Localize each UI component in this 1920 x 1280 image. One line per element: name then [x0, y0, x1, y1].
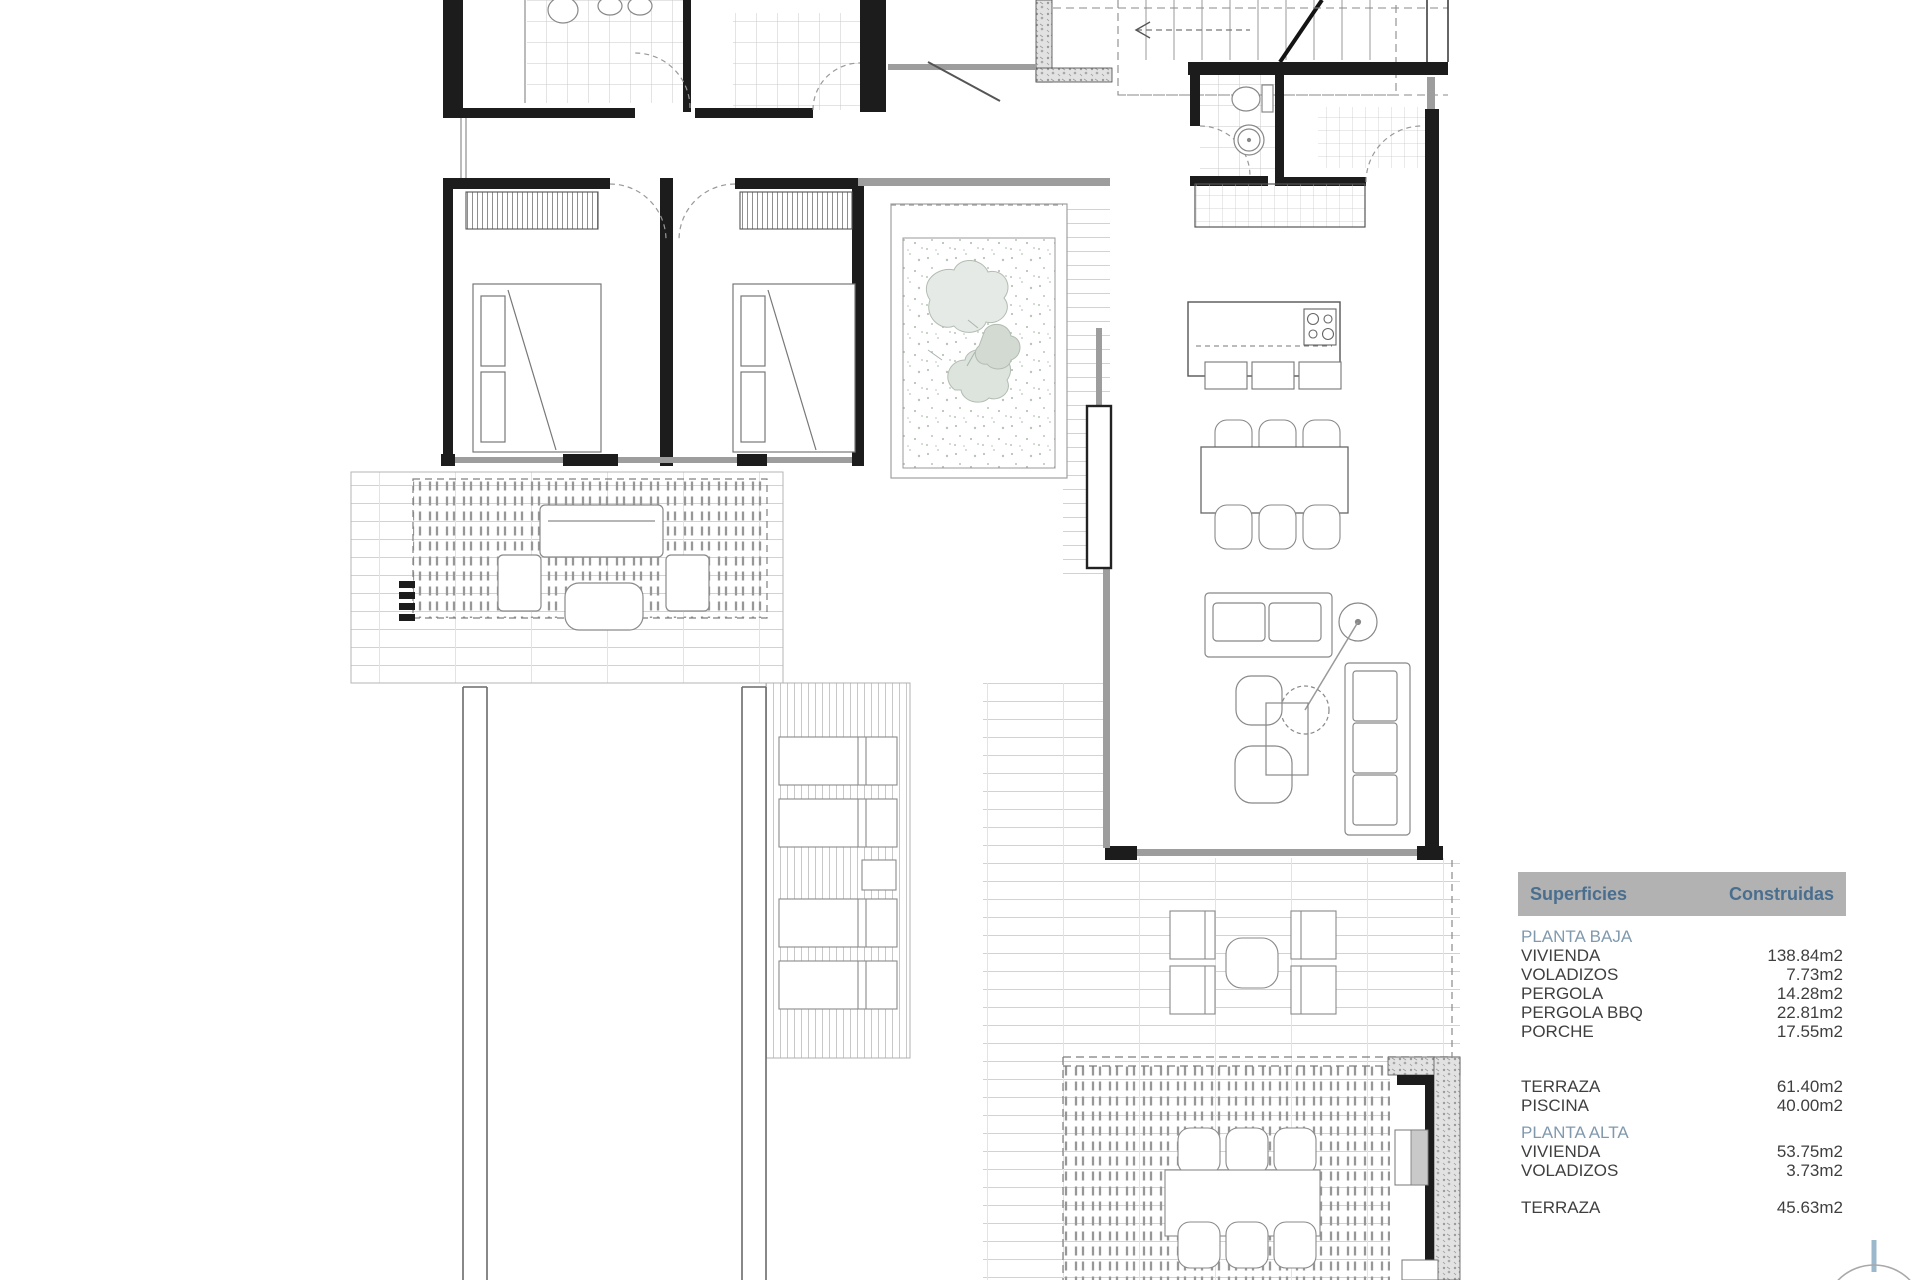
outdoor-table	[565, 583, 643, 630]
porch-tiles	[1105, 858, 1460, 1058]
pool	[463, 687, 766, 1280]
table-row: PLANTA ALTA	[1518, 1123, 1846, 1142]
dining-chair	[1178, 1222, 1220, 1268]
side-table	[862, 860, 896, 890]
kitchen	[1188, 184, 1365, 389]
dining-chair	[1178, 1128, 1220, 1174]
compass-logo-icon	[1820, 1235, 1920, 1280]
header-col-construidas: Construidas	[1729, 885, 1834, 904]
pergola	[399, 479, 767, 630]
bar-stool	[1299, 362, 1341, 389]
kitchen-counter-tiles	[1318, 107, 1426, 168]
cooktop-icon	[1304, 309, 1336, 345]
dining-chair	[1226, 1222, 1268, 1268]
outdoor-chair	[498, 555, 541, 611]
porch-glass-wall	[1137, 849, 1417, 856]
bbq-stone-wall	[1388, 1057, 1460, 1280]
table-row: PLANTA BAJA	[1518, 927, 1846, 946]
living-room	[1205, 593, 1410, 835]
table-row: PERGOLA BBQ 22.81m2	[1518, 1003, 1846, 1022]
dining-chair	[1274, 1222, 1316, 1268]
dining-table	[1201, 447, 1348, 513]
outdoor-sofa	[540, 505, 663, 557]
outdoor-chair	[666, 555, 709, 611]
entry-threshold	[888, 64, 1036, 70]
table-row: PISCINA 40.00m2	[1518, 1096, 1846, 1115]
bar-stool	[1252, 362, 1294, 389]
kitchen-cabinet	[1195, 184, 1365, 227]
column	[1087, 406, 1111, 568]
entry-wall-hatched	[1036, 0, 1112, 82]
header-col-superficies: Superficies	[1530, 885, 1627, 904]
table-row: VOLADIZOS 7.73m2	[1518, 965, 1846, 984]
pillow	[481, 372, 505, 442]
wardrobes	[466, 192, 852, 229]
table-row: TERRAZA 45.63m2	[1518, 1198, 1846, 1217]
floor-plan-sheet: Superficies Construidas PLANTA BAJA VIVI…	[0, 0, 1920, 1280]
surface-table: Superficies Construidas PLANTA BAJA VIVI…	[1518, 872, 1846, 1217]
dining-chair	[1303, 505, 1340, 549]
toilet-icon	[548, 0, 578, 23]
bed	[733, 284, 855, 452]
toilet-icon	[1232, 87, 1260, 111]
table-row: PORCHE 17.55m2	[1518, 1022, 1846, 1041]
dining-chair	[1226, 1128, 1268, 1174]
bed	[473, 284, 601, 452]
patio-glass-wall	[858, 178, 1110, 186]
dining-chair	[1259, 505, 1296, 549]
sink-icon	[598, 0, 622, 15]
porch-table	[1226, 938, 1278, 988]
dining-chair	[1215, 505, 1252, 549]
dining-area	[1201, 420, 1348, 549]
pouf	[1236, 676, 1282, 725]
dining-chair	[1274, 1128, 1316, 1174]
surface-table-header: Superficies Construidas	[1518, 872, 1846, 916]
table-row: PERGOLA 14.28m2	[1518, 984, 1846, 1003]
shower-room-tiles	[733, 13, 860, 110]
bar-stool	[1205, 362, 1247, 389]
table-row: VIVIENDA 138.84m2	[1518, 946, 1846, 965]
logo	[1820, 1235, 1920, 1280]
sink-icon	[628, 0, 652, 15]
table-row: TERRAZA 61.40m2	[1518, 1077, 1846, 1096]
pillow	[741, 296, 765, 366]
pillow	[741, 372, 765, 442]
table-row: VIVIENDA 53.75m2	[1518, 1142, 1846, 1161]
pillow	[481, 296, 505, 366]
patio-planter	[891, 204, 1067, 478]
table-row: VOLADIZOS 3.73m2	[1518, 1161, 1846, 1180]
